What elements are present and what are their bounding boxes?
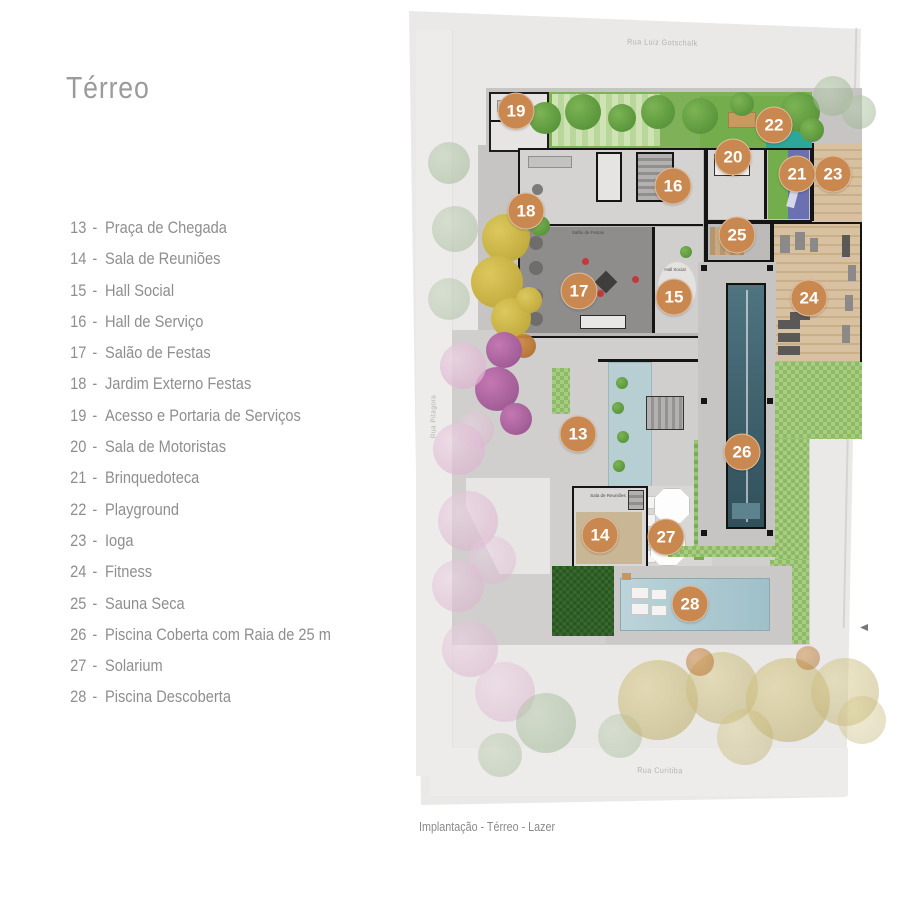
plan-badge-21: 21 xyxy=(779,156,816,193)
plan-badge-24: 24 xyxy=(791,280,828,317)
plan-badge-22: 22 xyxy=(756,107,793,144)
plan-badge-20: 20 xyxy=(715,139,752,176)
plan-badge-26: 26 xyxy=(724,434,761,471)
plan-badge-15: 15 xyxy=(656,279,693,316)
plan-badge-13: 13 xyxy=(560,416,597,453)
plan-badge-25: 25 xyxy=(719,217,756,254)
page: Térreo 13-Praça de Chegada14-Sala de Reu… xyxy=(0,0,900,900)
plan-badge-16: 16 xyxy=(655,168,692,205)
badge-layer: 13141516171819202122232425262728 xyxy=(0,0,900,900)
plan-badge-27: 27 xyxy=(648,519,685,556)
plan-badge-18: 18 xyxy=(508,193,545,230)
plan-badge-28: 28 xyxy=(672,586,709,623)
plan-badge-23: 23 xyxy=(815,156,852,193)
plan-badge-14: 14 xyxy=(582,517,619,554)
plan-caption: Implantação - Térreo - Lazer xyxy=(419,820,555,834)
plan-badge-17: 17 xyxy=(561,273,598,310)
plan-badge-19: 19 xyxy=(498,93,535,130)
